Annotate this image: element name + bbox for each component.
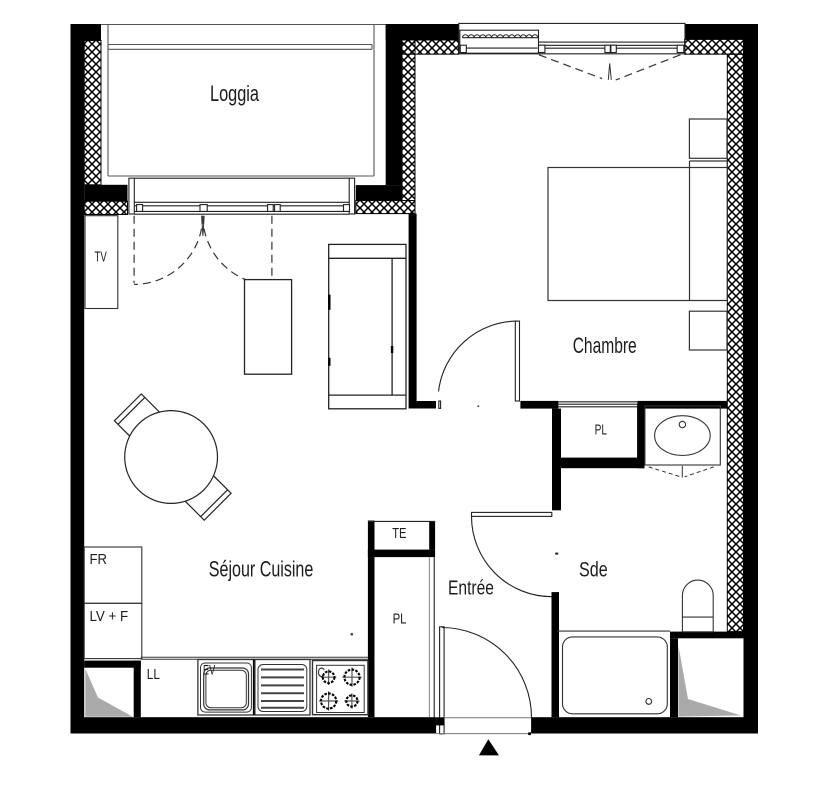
svg-text:FR: FR	[90, 552, 108, 568]
svg-text:Sde: Sde	[579, 557, 608, 581]
svg-text:EV: EV	[203, 663, 215, 678]
svg-text:Chambre: Chambre	[573, 333, 637, 358]
svg-text:Loggia: Loggia	[210, 81, 260, 106]
svg-text:PL: PL	[595, 423, 607, 439]
svg-text:PL: PL	[393, 612, 407, 628]
svg-text:Entrée: Entrée	[448, 578, 494, 600]
svg-text:C: C	[318, 664, 326, 680]
svg-text:TV: TV	[95, 250, 108, 266]
svg-text:TE: TE	[392, 526, 407, 542]
svg-text:LV + F: LV + F	[90, 608, 129, 625]
svg-text:LL: LL	[147, 666, 160, 683]
svg-text:Séjour Cuisine: Séjour Cuisine	[209, 557, 313, 582]
